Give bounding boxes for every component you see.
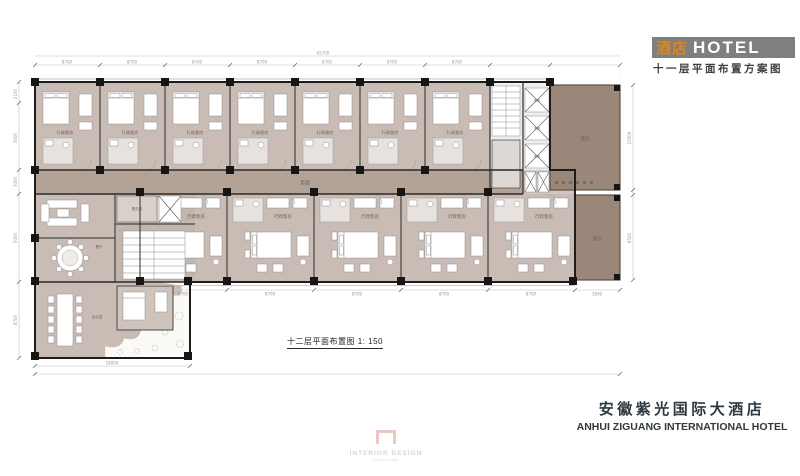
plan-caption: 十二层平面布置图 1: 150 <box>287 336 383 349</box>
terrace-label: 露台 <box>581 135 590 142</box>
dim-bay: 8700 <box>257 60 268 65</box>
dim-bottom-right: 3600 <box>592 292 603 297</box>
hotel-name-en: ANHUI ZIGUANG INTERNATIONAL HOTEL <box>572 421 792 433</box>
logo-band: 酒店 HOTEL <box>652 37 795 58</box>
dim-left: 2100 <box>13 88 18 99</box>
dim-left: 8700 <box>13 314 18 325</box>
room-label: 行政客房 <box>187 213 205 220</box>
dim-left: 5000 <box>13 132 18 143</box>
dim-bay: 8700 <box>387 60 398 65</box>
corridor-label: 走廊 <box>300 180 310 187</box>
dim-left: 5000 <box>13 232 18 243</box>
dim-left: 3000 <box>13 176 18 187</box>
dim-bay: 8700 <box>439 292 450 297</box>
hotel-name-cn: 安徽紫光国际大酒店 <box>572 398 792 419</box>
dim-bay: 8700 <box>452 60 463 65</box>
room-label: 行政客房 <box>447 129 464 136</box>
dim-total-top: 65700 <box>317 51 330 56</box>
room-label: 行政客房 <box>535 213 553 220</box>
room-label: 行政客房 <box>187 129 204 136</box>
dim-bay: 8700 <box>352 292 363 297</box>
dim-bay: 8700 <box>178 292 189 297</box>
logo-en: HOTEL <box>693 38 761 58</box>
dining-label: 餐厅 <box>96 244 103 249</box>
service-label: 服务间 <box>132 206 143 211</box>
service-core <box>117 196 185 279</box>
dim-bay: 8700 <box>62 60 73 65</box>
dim-bay: 8700 <box>127 60 138 65</box>
floor-plan: 65700 8700 8700 8700 8700 8700 8700 8700 <box>5 48 655 378</box>
watermark: INTERIOR DESIGN interior design <box>338 430 434 462</box>
room-label: 行政客房 <box>382 129 399 136</box>
terrace-label: 露台 <box>593 235 602 242</box>
watermark-brand: INTERIOR DESIGN <box>338 450 434 457</box>
dim-bay: 8700 <box>265 292 276 297</box>
conference-table <box>57 294 73 346</box>
watermark-logo-icon <box>376 430 396 444</box>
scheme-title: 十一层平面布置方案图 <box>653 61 798 76</box>
elevator-label: 客梯 <box>534 126 540 131</box>
room-label: 行政客房 <box>252 129 269 136</box>
room-label: 行政客房 <box>274 213 292 220</box>
room-label: 行政客房 <box>317 129 334 136</box>
footer-block: 安徽紫光国际大酒店 ANHUI ZIGUANG INTERNATIONAL HO… <box>572 398 792 433</box>
dim-bay: 8700 <box>192 60 203 65</box>
dim-bay: 8700 <box>526 292 537 297</box>
dim-wing-total: 18000 <box>106 361 119 366</box>
drawing-sheet: 65700 8700 8700 8700 8700 8700 8700 8700 <box>0 0 800 476</box>
room-label: 行政客房 <box>361 213 379 220</box>
room-label: 行政客房 <box>448 213 466 220</box>
room-label: 行政客房 <box>57 129 74 136</box>
elevator-label: 客梯 <box>534 98 540 103</box>
meeting-label: 会议室 <box>92 314 103 319</box>
watermark-sub: interior design <box>338 457 434 462</box>
elevator-label: 客梯 <box>534 154 540 159</box>
room-label: 行政客房 <box>122 129 139 136</box>
dim-right: 8500 <box>627 232 632 243</box>
dim-bay: 8700 <box>322 60 333 65</box>
logo-cn: 酒店 <box>656 37 688 58</box>
dim-right: 10500 <box>627 131 632 144</box>
